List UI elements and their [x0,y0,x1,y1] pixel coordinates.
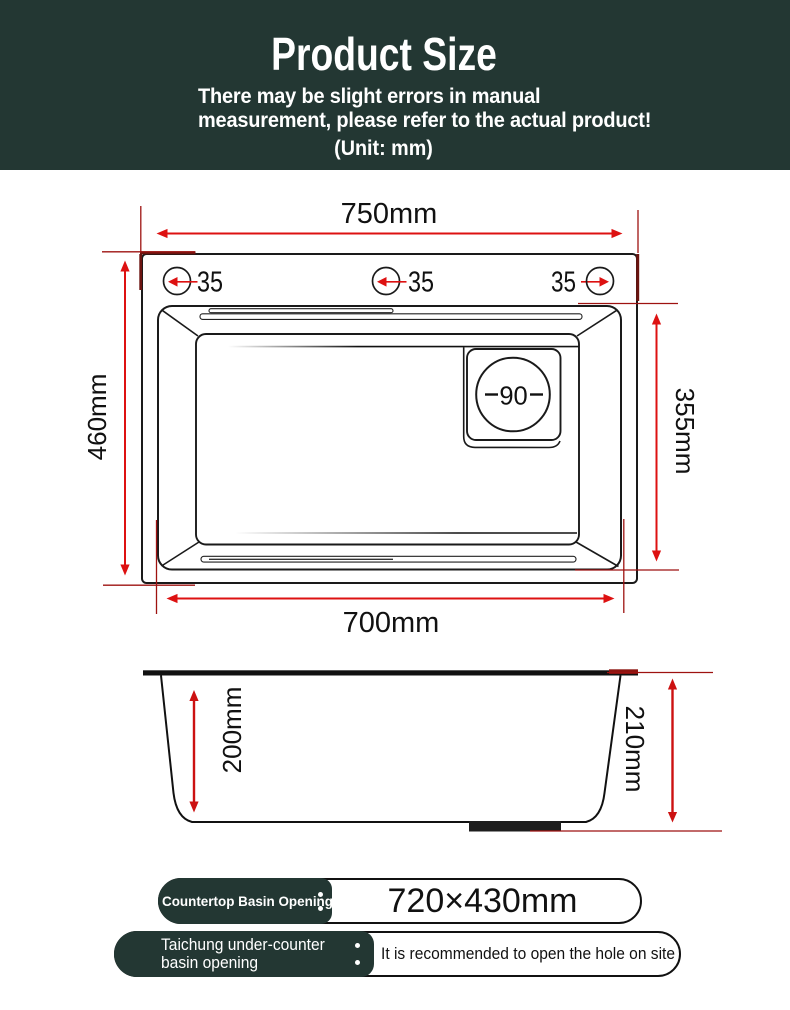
svg-text:90: 90 [499,382,527,410]
svg-text:700mm: 700mm [343,607,440,639]
svg-text:35: 35 [197,267,223,299]
svg-text:35: 35 [551,267,576,299]
svg-text:355mm: 355mm [670,388,700,475]
svg-text:210mm: 210mm [620,706,650,793]
svg-text:750mm: 750mm [341,198,438,230]
svg-text:35: 35 [408,267,434,299]
svg-text:460mm: 460mm [82,374,112,461]
svg-text:200mm: 200mm [217,687,247,774]
